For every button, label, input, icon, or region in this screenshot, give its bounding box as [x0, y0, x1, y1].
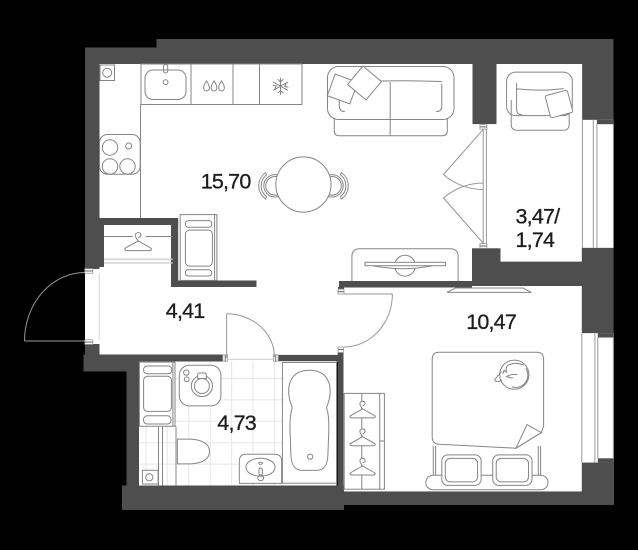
svg-text:4,73: 4,73 — [217, 411, 256, 435]
svg-text:15,70: 15,70 — [201, 169, 252, 193]
svg-text:4,41: 4,41 — [166, 299, 205, 323]
svg-text:3,47/: 3,47/ — [516, 205, 561, 229]
svg-text:1,74: 1,74 — [516, 228, 555, 252]
svg-text:10,47: 10,47 — [466, 310, 516, 334]
